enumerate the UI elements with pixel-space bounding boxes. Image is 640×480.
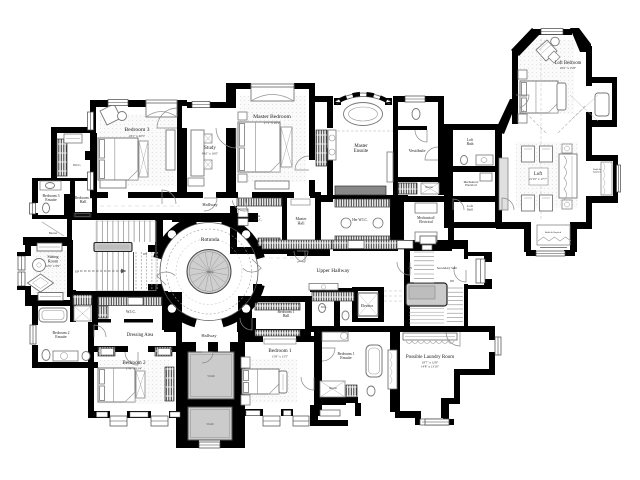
svg-text:14'8" x 13'10": 14'8" x 13'10" — [421, 365, 440, 369]
svg-text:Bedroom 3: Bedroom 3 — [124, 127, 149, 133]
svg-text:Hall: Hall — [467, 208, 473, 212]
svg-text:STAIR: STAIR — [207, 375, 215, 378]
svg-text:DN: DN — [408, 267, 412, 270]
svg-text:Ensuite: Ensuite — [45, 198, 57, 202]
svg-text:W.I.C.: W.I.C. — [126, 310, 136, 314]
svg-text:Upper Hallway: Upper Hallway — [316, 268, 349, 274]
svg-text:Bath: Bath — [467, 142, 474, 146]
svg-text:Master Bedroom: Master Bedroom — [253, 114, 291, 120]
svg-text:Dressing Area: Dressing Area — [127, 333, 155, 338]
svg-text:17'1" x 19'5": 17'1" x 19'5" — [264, 121, 281, 125]
svg-text:12'6" x 9'9": 12'6" x 9'9" — [46, 264, 62, 268]
svg-text:21'10" x 17'7": 21'10" x 17'7" — [529, 177, 548, 181]
svg-text:Electrical: Electrical — [465, 183, 477, 187]
svg-text:Hallway: Hallway — [202, 202, 218, 207]
svg-text:Elevator: Elevator — [361, 304, 374, 308]
svg-text:Shower: Shower — [49, 232, 58, 235]
svg-text:Shower: Shower — [329, 387, 337, 390]
svg-text:Bedroom 2: Bedroom 2 — [122, 360, 146, 366]
svg-text:18'2" x 15'8": 18'2" x 15'8" — [560, 66, 577, 70]
svg-text:Secondary Stair: Secondary Stair — [437, 266, 458, 270]
svg-text:Hall: Hall — [80, 200, 87, 204]
svg-text:9'10" x 16'0": 9'10" x 16'0" — [202, 151, 219, 155]
svg-text:Vestibule: Vestibule — [408, 148, 425, 153]
svg-text:W.C.: W.C. — [321, 305, 327, 309]
svg-text:Hall: Hall — [283, 314, 290, 318]
svg-text:Hallway: Hallway — [201, 333, 217, 338]
svg-text:Ensuite: Ensuite — [354, 149, 368, 154]
svg-text:Study: Study — [204, 146, 216, 151]
svg-text:STAIR: STAIR — [206, 271, 214, 274]
svg-text:Electrical: Electrical — [419, 220, 433, 224]
svg-text:Ensuite: Ensuite — [340, 356, 352, 360]
svg-text:DN: DN — [143, 253, 147, 256]
svg-text:Daybed: Daybed — [593, 171, 602, 174]
svg-text:UP: UP — [75, 270, 79, 274]
svg-text:Her W.I.C.: Her W.I.C. — [352, 218, 368, 222]
svg-text:STAIR: STAIR — [206, 423, 214, 426]
svg-text:18'1" x 20'5": 18'1" x 20'5" — [129, 134, 146, 138]
svg-text:Bedroom 1: Bedroom 1 — [268, 348, 292, 354]
svg-text:W.I.C.: W.I.C. — [254, 217, 262, 221]
svg-text:Rotunda: Rotunda — [201, 237, 220, 243]
svg-text:Shower: Shower — [425, 186, 433, 189]
svg-text:DN: DN — [450, 280, 454, 283]
svg-text:Ensuite: Ensuite — [55, 335, 67, 339]
svg-text:Hall: Hall — [298, 220, 306, 225]
svg-text:Built-In Daybed: Built-In Daybed — [545, 231, 562, 234]
svg-text:17'8" x 13'4": 17'8" x 13'4" — [126, 367, 143, 371]
svg-text:15'8" x 13'5": 15'8" x 13'5" — [272, 355, 289, 359]
svg-text:W.I.C.: W.I.C. — [73, 163, 81, 167]
svg-text:Possible Laundry Room: Possible Laundry Room — [406, 355, 454, 360]
svg-text:Room: Room — [48, 259, 59, 264]
